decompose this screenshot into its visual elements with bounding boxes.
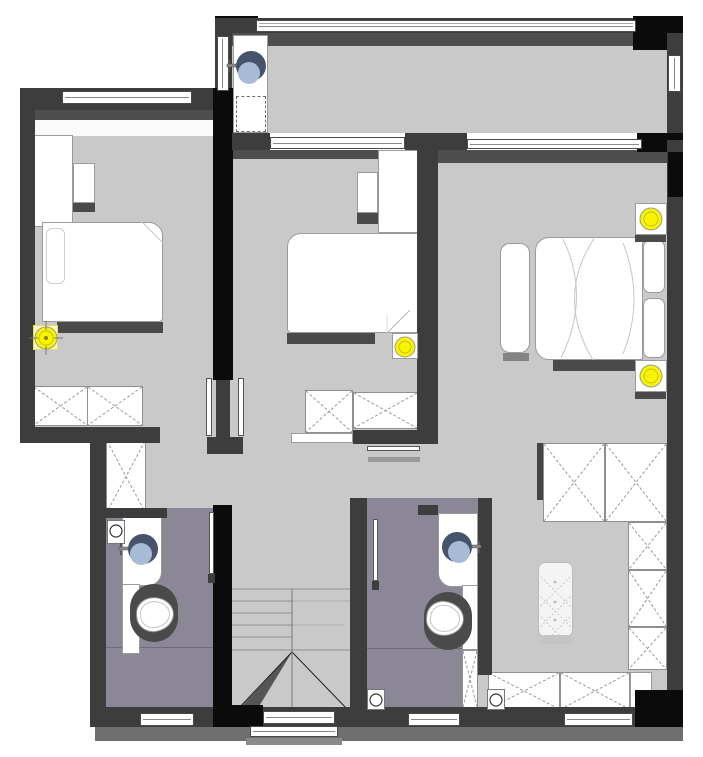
ceiling-light-icon — [389, 331, 421, 363]
floor-drain-icon — [368, 692, 384, 708]
wash-basin-icon — [225, 40, 277, 92]
wash-basin-icon — [117, 523, 169, 575]
fixtures-layer — [0, 0, 703, 757]
ceiling-light-icon — [634, 359, 668, 393]
floor-plan — [0, 0, 703, 757]
ceiling-light-icon — [29, 321, 63, 355]
wash-basin-icon — [431, 521, 483, 573]
floor-drain-icon — [488, 692, 504, 708]
ceiling-light-icon — [634, 202, 668, 236]
